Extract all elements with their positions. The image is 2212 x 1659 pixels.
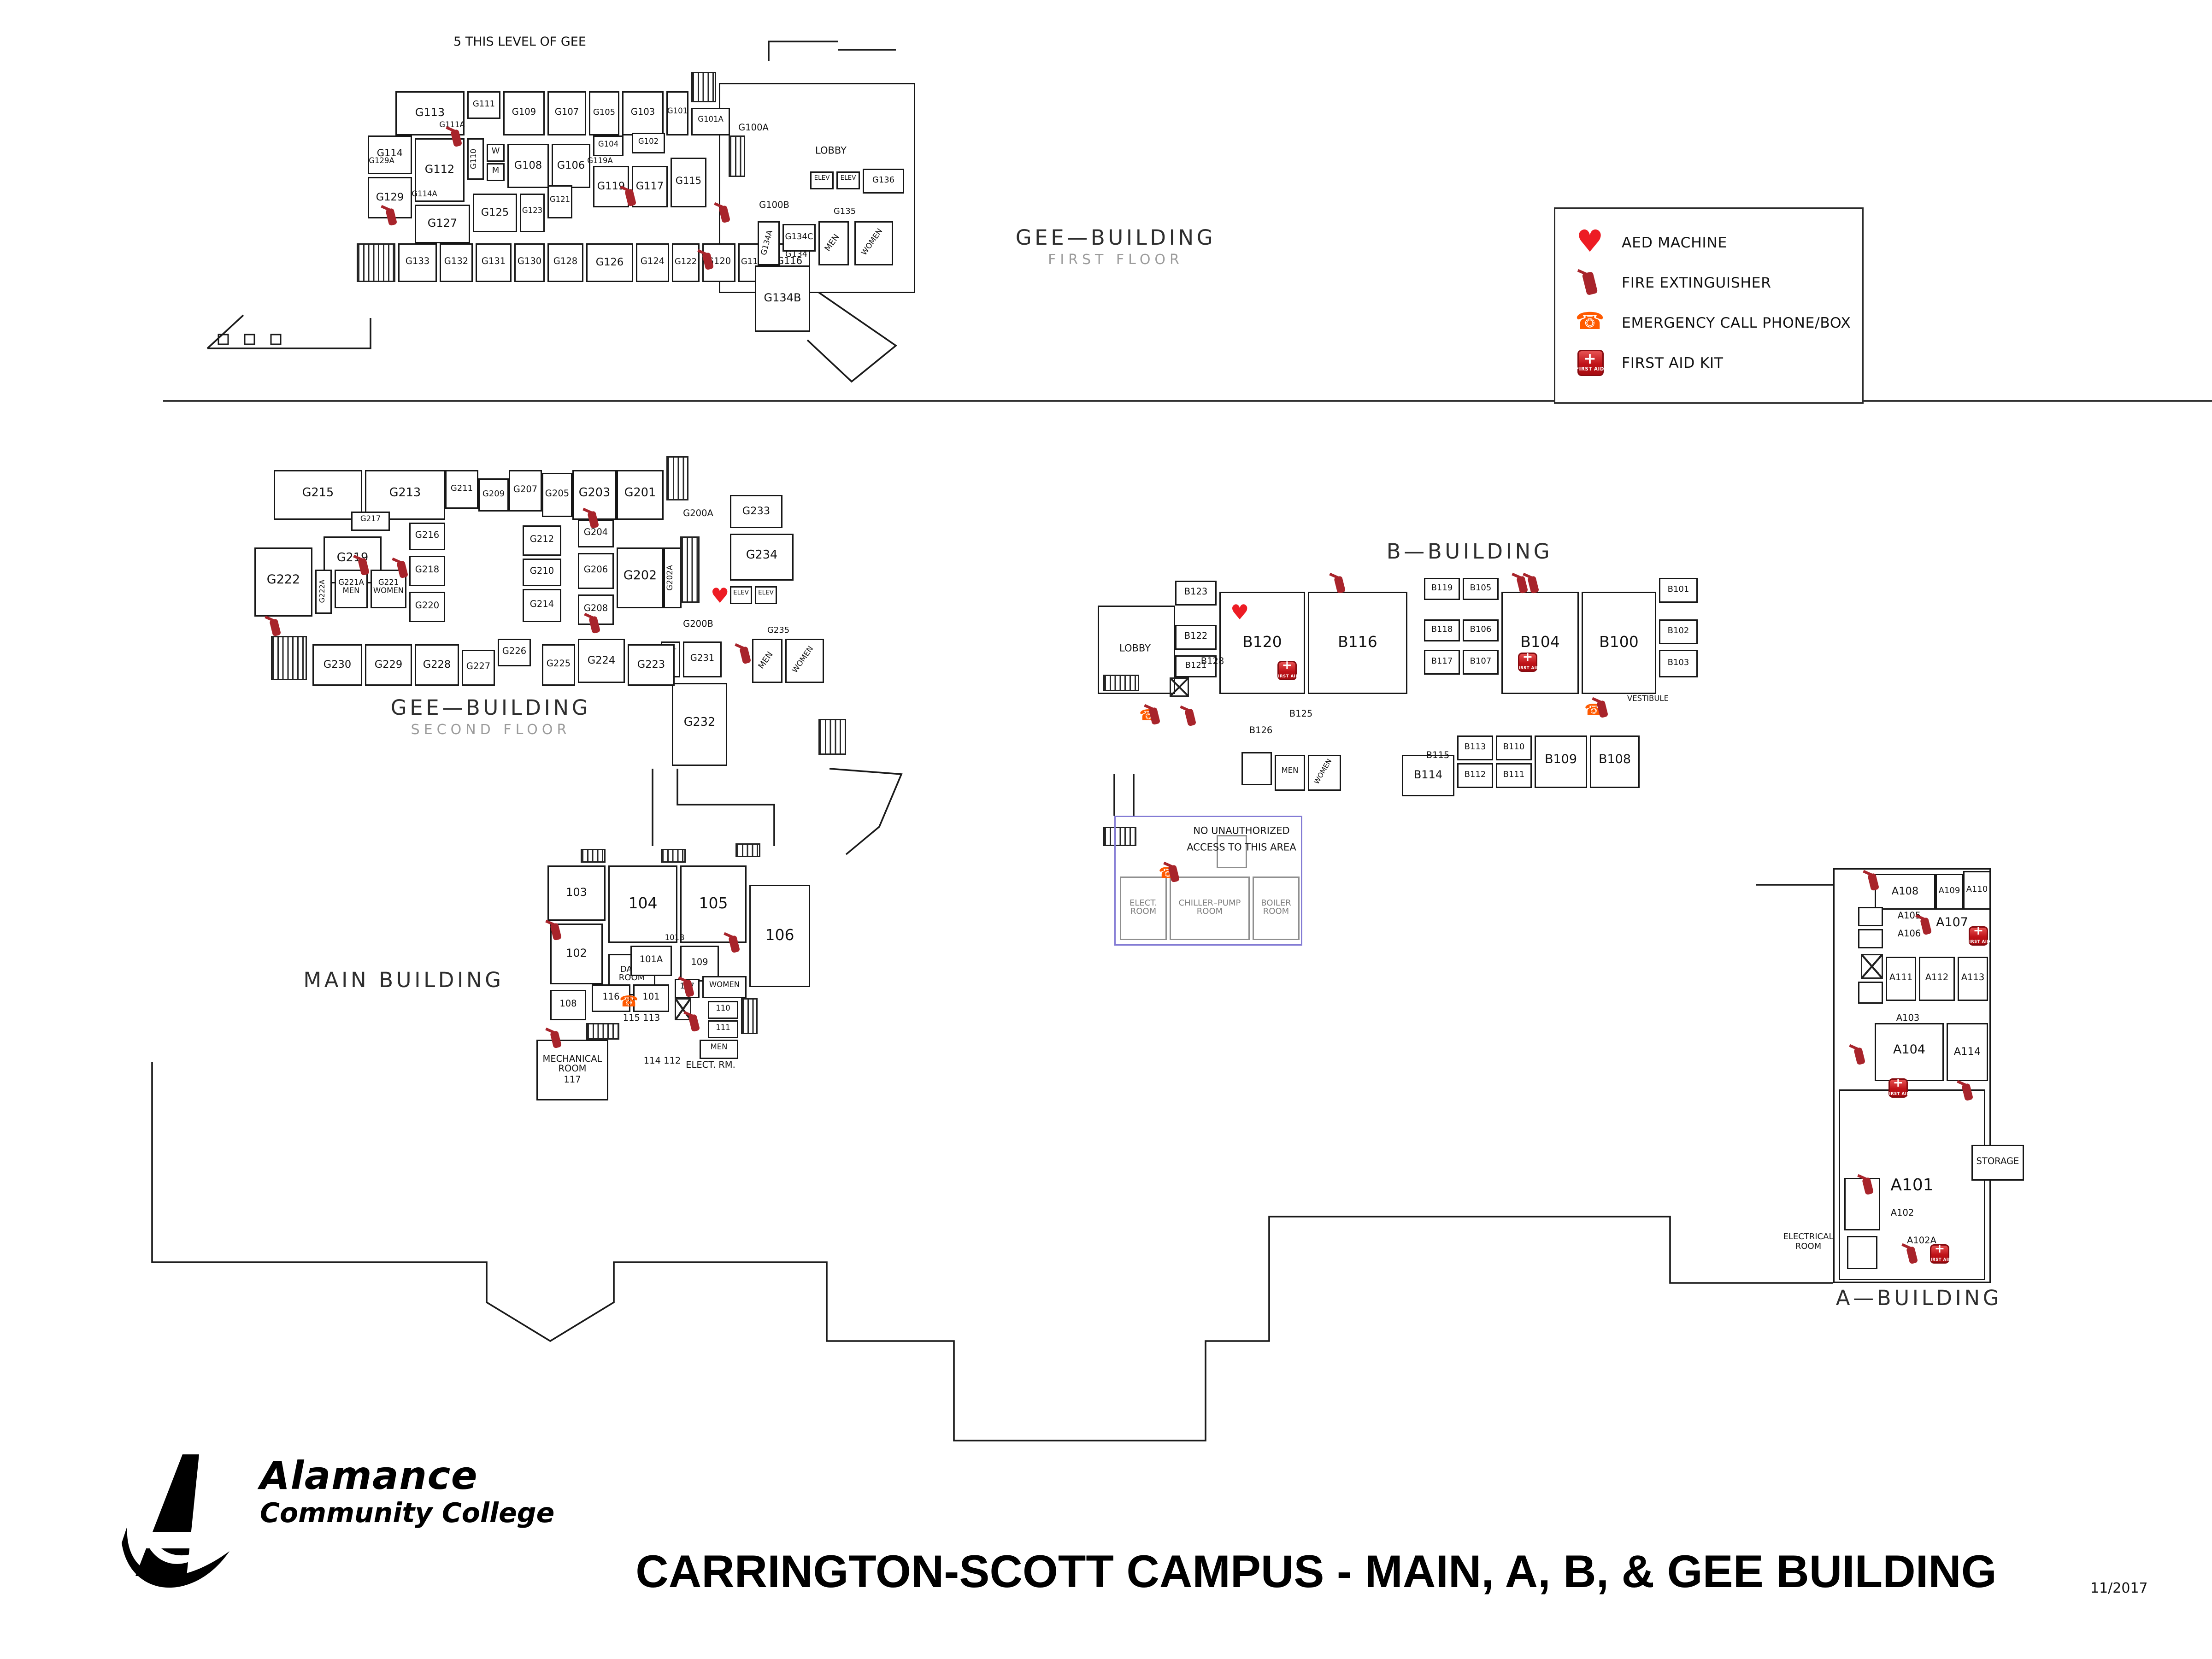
room-label: B103	[1668, 659, 1689, 668]
stairs	[729, 135, 745, 177]
room-b106: B106	[1463, 619, 1499, 641]
room-label: 110	[716, 1006, 730, 1014]
room-label: B123	[1184, 588, 1208, 598]
heading-main: MAIN BUILDING	[303, 968, 504, 993]
aed-heart-icon: ♥	[711, 586, 729, 607]
room-a114: A114	[1947, 1023, 1988, 1081]
room-g211: G211	[445, 470, 478, 509]
room-label: B105	[1470, 584, 1492, 593]
fire-extinguisher-icon	[1184, 709, 1195, 726]
room-g115: G115	[671, 158, 706, 207]
room-label: B119	[1431, 584, 1453, 593]
first-aid-kit-icon: +FIRST AID	[1930, 1244, 1949, 1264]
room-label: G134B	[764, 293, 801, 305]
building-name: MAIN BUILDING	[303, 968, 504, 993]
room-men: MEN	[752, 639, 782, 683]
room-label: B113	[1465, 743, 1486, 752]
room-label: STORAGE	[1977, 1158, 2019, 1167]
emergency-phone-icon: ☎	[1575, 311, 1605, 335]
label-g200a: G200A	[683, 509, 713, 519]
warning-text-line: NO UNAUTHORIZED	[1193, 827, 1290, 837]
legend-item: ☎EMERGENCY CALL PHONE/BOX	[1555, 303, 1862, 343]
room-label: G112	[425, 164, 454, 176]
alamance-logo: Alamance Community College	[122, 1449, 554, 1593]
room-g230: G230	[312, 644, 362, 686]
label-elect---rm-: ELECT. RM.	[686, 1061, 735, 1071]
room-label: A104	[1893, 1045, 1925, 1059]
room-label: G222	[267, 575, 300, 588]
fire-extinguisher-icon	[1516, 576, 1527, 593]
room-g123: G123	[520, 194, 545, 232]
room-label: B104	[1520, 635, 1560, 651]
legend-items: ♥AED MACHINEFIRE EXTINGUISHER☎EMERGENCY …	[1555, 223, 1862, 383]
room-label: G109	[512, 108, 536, 118]
room-label: G207	[513, 486, 537, 495]
room-g234: G234	[730, 534, 794, 581]
stairs	[691, 72, 716, 102]
stairs	[735, 843, 760, 857]
room-label: G205	[545, 490, 569, 500]
room-b110: B110	[1496, 735, 1532, 760]
room-g228: G228	[415, 644, 459, 686]
room-women: WOMEN	[702, 976, 747, 998]
room-g134b: G134B	[755, 265, 810, 332]
room-103: 103	[547, 865, 606, 921]
room-g103: G103	[622, 91, 664, 135]
fire-extinguisher-icon	[1527, 576, 1538, 593]
room-g106: G106	[552, 144, 590, 188]
first-aid-kit-icon: +FIRST AID	[1888, 1078, 1908, 1098]
room-g207: G207	[509, 470, 542, 512]
fire-extinguisher-icon	[1582, 271, 1598, 294]
room-label: B101	[1668, 586, 1689, 594]
wall-outline	[1858, 982, 1883, 1004]
room-g130: G130	[514, 243, 545, 282]
room-label: G121	[550, 198, 570, 206]
room-label: G131	[482, 258, 506, 267]
room-label: WOMEN	[862, 229, 886, 259]
room-g231: G231	[683, 641, 722, 677]
wall-outline	[1858, 929, 1883, 948]
room-b104: B104	[1501, 592, 1579, 694]
room-label: B120	[1242, 635, 1282, 651]
room-label: 101A	[640, 956, 663, 965]
label-g119a: G119A	[587, 158, 613, 166]
room-104: 104	[608, 865, 677, 943]
first-aid-kit-icon: +FIRST AID	[1277, 661, 1297, 680]
room-label: G130	[518, 258, 541, 267]
room-label: G113	[415, 107, 445, 119]
room-a109: A109	[1935, 874, 1963, 910]
room-label: G202A	[669, 565, 677, 591]
label-electrical-room: ELECTRICAL ROOM	[1783, 1234, 1833, 1252]
room-label: G206	[584, 566, 608, 576]
room-g217: G217	[351, 512, 390, 531]
room-label: G110	[471, 149, 480, 169]
room-g126: G126	[586, 243, 633, 282]
label-lobby: LOBBY	[815, 147, 847, 157]
room-label: G132	[444, 258, 468, 267]
room-mechanical-room-117: MECHANICAL ROOM 117	[536, 1040, 608, 1100]
room-m: M	[487, 163, 505, 181]
room-label: B102	[1668, 627, 1689, 636]
room-label: 101	[642, 993, 659, 1003]
label-b126: B126	[1249, 726, 1273, 736]
elevator-shaft	[1170, 677, 1189, 697]
room-label: A109	[1939, 887, 1960, 896]
room-label: A110	[1966, 886, 1988, 894]
room-g226: G226	[498, 639, 531, 666]
room-b103: B103	[1659, 650, 1698, 677]
room-g212: G212	[523, 525, 561, 556]
room-label: G117	[636, 181, 664, 192]
room-women: WOMEN	[854, 221, 893, 265]
room-label: G224	[588, 655, 615, 666]
label-a102: A102	[1891, 1209, 1914, 1219]
room-label: G201	[624, 488, 656, 501]
room-g117: G117	[632, 166, 668, 207]
room-label: B117	[1431, 658, 1453, 666]
room-label: B108	[1599, 755, 1631, 768]
room-g227: G227	[462, 650, 495, 686]
stairs	[357, 243, 395, 282]
room-g222a: G222A	[315, 570, 332, 614]
room-label: G227	[466, 663, 490, 672]
room-label: G101A	[698, 118, 724, 126]
room-label: G215	[302, 488, 334, 501]
room-a108: A108	[1875, 874, 1935, 910]
legend-item: ♥AED MACHINE	[1555, 223, 1862, 263]
room-g114: G114	[368, 135, 412, 174]
room-w: W	[487, 144, 505, 162]
aed-heart-icon: ♥	[1230, 603, 1249, 624]
stairs	[661, 849, 686, 863]
room-g131: G131	[476, 243, 512, 282]
room-label: WOMEN	[793, 646, 817, 676]
room-g132: G132	[440, 243, 473, 282]
campus-map-page: 5 THIS LEVEL OF GEE ♥AED MACHINEFIRE EXT…	[0, 0, 2212, 1659]
room-label: G128	[553, 258, 577, 267]
room-label: G217	[360, 517, 381, 525]
logo-line2: Community College	[260, 1500, 554, 1527]
room-label: G213	[389, 488, 421, 501]
stairs	[680, 536, 700, 603]
legend-label: AED MACHINE	[1622, 235, 1727, 251]
room-label: G232	[684, 718, 715, 731]
room-label: MEN	[1281, 769, 1298, 777]
room-label: 102	[566, 948, 587, 960]
room-a111: A111	[1886, 957, 1916, 1001]
legend-label: FIRST AID KIT	[1622, 355, 1724, 371]
room-label: G102	[638, 139, 659, 147]
label-b128: B128	[1201, 657, 1224, 667]
fire-extinguisher-icon	[269, 619, 280, 636]
alamance-logo-mark-icon	[122, 1449, 254, 1593]
room-label: G211	[451, 485, 473, 494]
stairs	[271, 636, 307, 680]
room-label: G204	[584, 529, 608, 538]
room-108: 108	[550, 990, 586, 1020]
room-men: MEN	[1275, 755, 1305, 791]
room-a110: A110	[1963, 871, 1991, 910]
label-g100b: G100B	[759, 201, 789, 211]
label-g129a: G129A	[369, 158, 394, 166]
stairs	[581, 849, 606, 863]
room-b118: B118	[1424, 619, 1460, 641]
room-a104: A104	[1875, 1023, 1944, 1081]
room-label: G210	[530, 567, 554, 577]
heading-gee1: GEE—BUILDINGFIRST FLOOR	[1016, 225, 1216, 268]
building-name: GEE—BUILDING	[1016, 225, 1216, 250]
room-101: 101	[633, 984, 669, 1012]
room-label: 103	[566, 887, 587, 899]
room-g205: G205	[542, 473, 572, 517]
room-elev: ELEV	[836, 171, 860, 189]
room-g102: G102	[632, 133, 665, 153]
heading-a: A—BUILDING	[1836, 1286, 2002, 1311]
room-g108: G108	[507, 144, 549, 188]
aed-heart-icon: ♥	[1569, 226, 1611, 259]
room-label: G125	[481, 207, 509, 218]
room-b119: B119	[1424, 578, 1460, 600]
room-label: ELEV	[733, 592, 749, 599]
room-g134a: G134A	[758, 221, 780, 265]
room-g220: G220	[409, 592, 445, 622]
room-label: G136	[872, 176, 894, 185]
label-g135: G135	[834, 208, 856, 218]
label-114--112: 114 112	[644, 1057, 681, 1067]
emergency-phone-icon: ☎	[1569, 306, 1611, 340]
room-g224: G224	[578, 639, 625, 683]
room-label: M	[492, 168, 500, 176]
room-label: G104	[598, 142, 618, 150]
room-elev: ELEV	[730, 586, 752, 604]
room-label: MEN	[758, 651, 776, 671]
room-b100: B100	[1582, 592, 1656, 694]
room-label: 116	[602, 993, 619, 1003]
room-label: G222A	[320, 580, 327, 604]
building-name: A—BUILDING	[1836, 1286, 2002, 1311]
room-label: B114	[1414, 770, 1442, 782]
room-label: B111	[1503, 771, 1525, 780]
room-g111: G111	[467, 91, 500, 119]
room-men: MEN	[818, 221, 849, 265]
room-label: MEN	[710, 1045, 727, 1053]
room-b101: B101	[1659, 578, 1698, 603]
room-label: G115	[676, 177, 701, 188]
room-a113: A113	[1958, 957, 1988, 1001]
room-label: ELEV	[841, 177, 856, 184]
room-label: B122	[1184, 632, 1208, 642]
room-label: G221A MEN	[338, 581, 364, 597]
logo-line1: Alamance	[260, 1457, 554, 1496]
room-label: G231	[690, 654, 714, 664]
room-label: B109	[1545, 755, 1577, 768]
room-label: G101	[667, 109, 688, 118]
room-g127: G127	[415, 205, 470, 243]
fire-extinguisher-icon	[739, 647, 750, 664]
room-label: G203	[579, 488, 610, 501]
room-label: A114	[1954, 1047, 1981, 1058]
room-label: G216	[415, 531, 439, 541]
room-storage: STORAGE	[1971, 1145, 2024, 1181]
room-label: G123	[522, 209, 542, 217]
fire-extinguisher-icon	[1569, 266, 1611, 300]
room-b122: B122	[1175, 625, 1217, 650]
elevator-shaft	[1861, 954, 1883, 979]
wall-outline	[1858, 907, 1883, 926]
room-label: A101	[1890, 1176, 1933, 1194]
room-label: B110	[1503, 743, 1525, 752]
room-g210: G210	[523, 559, 561, 586]
room-label: B100	[1599, 635, 1639, 651]
room-label: G208	[584, 605, 608, 614]
room-label: G225	[547, 660, 571, 670]
room-label: WOMEN	[1314, 759, 1335, 787]
room-b112: B112	[1457, 763, 1493, 788]
stairs	[741, 998, 758, 1034]
aed-heart-icon: ♥	[1576, 228, 1603, 258]
emergency-phone-icon: ☎	[619, 994, 638, 1009]
fire-extinguisher-icon	[688, 1014, 699, 1031]
room-g104: G104	[593, 135, 624, 156]
alamance-logo-text: Alamance Community College	[260, 1457, 554, 1527]
stairs	[586, 1023, 619, 1040]
room-label: G126	[596, 257, 624, 268]
room-label: A113	[1961, 974, 1985, 983]
room-label: A112	[1925, 974, 1949, 983]
label-vestibule: VESTIBULE	[1627, 695, 1669, 704]
room-label: W	[492, 148, 500, 157]
room-label: 106	[765, 928, 794, 944]
fire-extinguisher-icon	[1334, 576, 1345, 593]
room-g216: G216	[409, 523, 445, 550]
room-g201: G201	[617, 470, 664, 520]
room-label: B107	[1470, 658, 1492, 666]
room-label: B116	[1338, 635, 1377, 651]
wall-outline	[1844, 1178, 1880, 1230]
room-label: G209	[482, 490, 505, 499]
room-g136: G136	[863, 169, 904, 194]
room-111: 111	[708, 1020, 738, 1038]
room-g133: G133	[398, 243, 437, 282]
room-label: G233	[742, 506, 770, 517]
room-label: G129	[376, 192, 404, 203]
room-men: MEN	[700, 1040, 738, 1059]
room-women: WOMEN	[785, 639, 824, 683]
room-g222: G222	[254, 547, 312, 617]
room-101a: 101A	[630, 946, 672, 976]
heading-gee2: GEE—BUILDINGSECOND FLOOR	[391, 695, 591, 738]
label-101b: 101B	[665, 935, 685, 943]
page-title: CARRINGTON-SCOTT CAMPUS - MAIN, A, B, & …	[635, 1546, 1997, 1598]
room-b113: B113	[1457, 735, 1493, 760]
room-label: G218	[415, 566, 439, 576]
room-label: G212	[530, 535, 554, 545]
room-label: 109	[691, 959, 708, 968]
room-g105: G105	[589, 91, 619, 135]
room-label: G122	[675, 258, 697, 267]
room-g124: G124	[636, 243, 669, 282]
building-name: B—BUILDING	[1387, 539, 1553, 564]
room-label: G221 WOMEN	[373, 581, 404, 597]
first-aid-kit-icon: +FIRST AID	[1969, 926, 1988, 946]
room-g128: G128	[547, 243, 583, 282]
stairs	[818, 719, 846, 755]
room-g110: G110	[467, 138, 484, 180]
room-label: 104	[629, 896, 658, 912]
room-label: G103	[631, 108, 655, 118]
label-g100a: G100A	[738, 124, 769, 134]
map-date: 11/2017	[2090, 1582, 2148, 1597]
room-b109: B109	[1535, 735, 1587, 788]
room-women: WOMEN	[1308, 755, 1341, 791]
room-g202: G202	[617, 547, 664, 608]
wall-outline	[1847, 1236, 1877, 1269]
room-label: G127	[428, 218, 457, 230]
legend-label: EMERGENCY CALL PHONE/BOX	[1622, 315, 1851, 331]
stairs	[1103, 675, 1139, 691]
room-label: 105	[699, 896, 728, 912]
room-g209: G209	[478, 478, 509, 512]
room-label: G228	[423, 659, 451, 671]
room-label: A108	[1892, 886, 1918, 897]
room-label: G234	[746, 551, 777, 564]
room-g221a-men: G221A MEN	[335, 570, 368, 608]
room-label: G106	[557, 160, 585, 171]
room-label: A111	[1889, 974, 1913, 983]
room-label: G202	[624, 571, 657, 584]
floor-name: FIRST FLOOR	[1016, 253, 1216, 268]
room-label: G134A	[761, 230, 776, 257]
label-b125: B125	[1289, 710, 1313, 720]
wall-outline	[1241, 752, 1272, 785]
room-label: ELEV	[758, 592, 774, 599]
room-label: G124	[641, 258, 665, 267]
note-this-level-of-gee: 5 THIS LEVEL OF GEE	[453, 36, 586, 50]
room-b108: B108	[1590, 735, 1640, 788]
room-b116: B116	[1308, 592, 1407, 694]
room-g225: G225	[542, 644, 575, 686]
room-g101a: G101A	[691, 108, 730, 135]
label-a107: A107	[1936, 917, 1968, 930]
room-label: MEN	[824, 233, 842, 253]
label-g200b: G200B	[683, 620, 713, 630]
room-g232: G232	[672, 683, 727, 766]
room-g121: G121	[547, 185, 572, 218]
room-g233: G233	[730, 495, 782, 528]
room-g122: G122	[672, 243, 700, 282]
room-elev: ELEV	[755, 586, 777, 604]
room-label: ELEV	[814, 177, 830, 184]
room-label: G229	[375, 659, 402, 671]
room-g202a: G202A	[664, 547, 682, 608]
label-a106: A106	[1898, 930, 1921, 940]
legend-item: +FIRST AIDFIRST AID KIT	[1555, 343, 1862, 383]
room-g223: G223	[628, 644, 675, 686]
room-g214: G214	[523, 589, 561, 622]
room-g107: G107	[547, 91, 586, 135]
label-115--113: 115 113	[623, 1014, 660, 1024]
room-label: G108	[514, 160, 542, 171]
room-g206: G206	[578, 553, 614, 589]
building-name: GEE—BUILDING	[391, 695, 591, 720]
room-label: B112	[1465, 771, 1486, 780]
room-b117: B117	[1424, 650, 1460, 675]
room-106: 106	[749, 885, 810, 987]
warning-text-line: ACCESS TO THIS AREA	[1187, 843, 1296, 854]
room-105: 105	[680, 865, 747, 943]
